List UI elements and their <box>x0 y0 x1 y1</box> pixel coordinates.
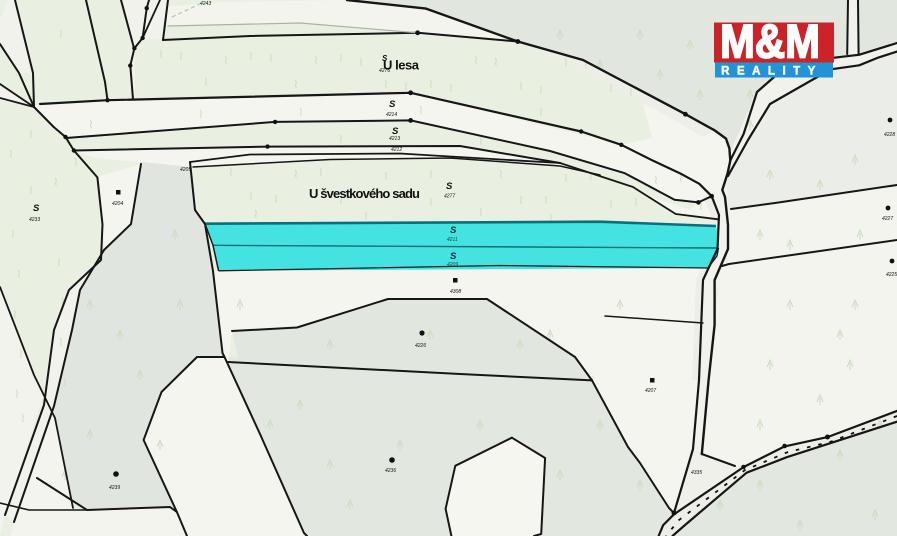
svg-text:4277: 4277 <box>444 194 455 200</box>
svg-text:4205: 4205 <box>180 167 191 173</box>
svg-text:REALITY: REALITY <box>721 66 823 78</box>
svg-text:S: S <box>389 99 396 110</box>
svg-text:U švestkového sadu: U švestkového sadu <box>309 186 420 201</box>
svg-text:S: S <box>450 225 457 236</box>
svg-text:4243: 4243 <box>200 1 211 7</box>
svg-text:4227: 4227 <box>882 216 893 222</box>
svg-text:4335: 4335 <box>691 470 702 476</box>
svg-text:S: S <box>382 54 388 63</box>
svg-text:4212: 4212 <box>391 147 402 153</box>
svg-text:4308: 4308 <box>450 289 461 295</box>
svg-text:4214: 4214 <box>386 112 397 118</box>
svg-text:4225: 4225 <box>886 272 897 278</box>
svg-text:4211: 4211 <box>447 237 458 243</box>
svg-text:4236: 4236 <box>385 468 396 474</box>
svg-text:4226: 4226 <box>415 343 426 349</box>
svg-text:M&M: M&M <box>720 15 820 68</box>
svg-text:4204: 4204 <box>112 201 123 207</box>
svg-text:4239: 4239 <box>109 485 120 491</box>
svg-text:4276: 4276 <box>379 68 390 74</box>
svg-text:4207: 4207 <box>645 388 656 394</box>
svg-text:S: S <box>33 203 40 214</box>
svg-text:4213: 4213 <box>389 136 400 142</box>
svg-text:S: S <box>450 251 457 262</box>
svg-text:S: S <box>446 181 453 192</box>
svg-text:4209: 4209 <box>447 262 458 268</box>
svg-text:4228: 4228 <box>884 132 895 138</box>
svg-text:4233: 4233 <box>29 217 40 223</box>
